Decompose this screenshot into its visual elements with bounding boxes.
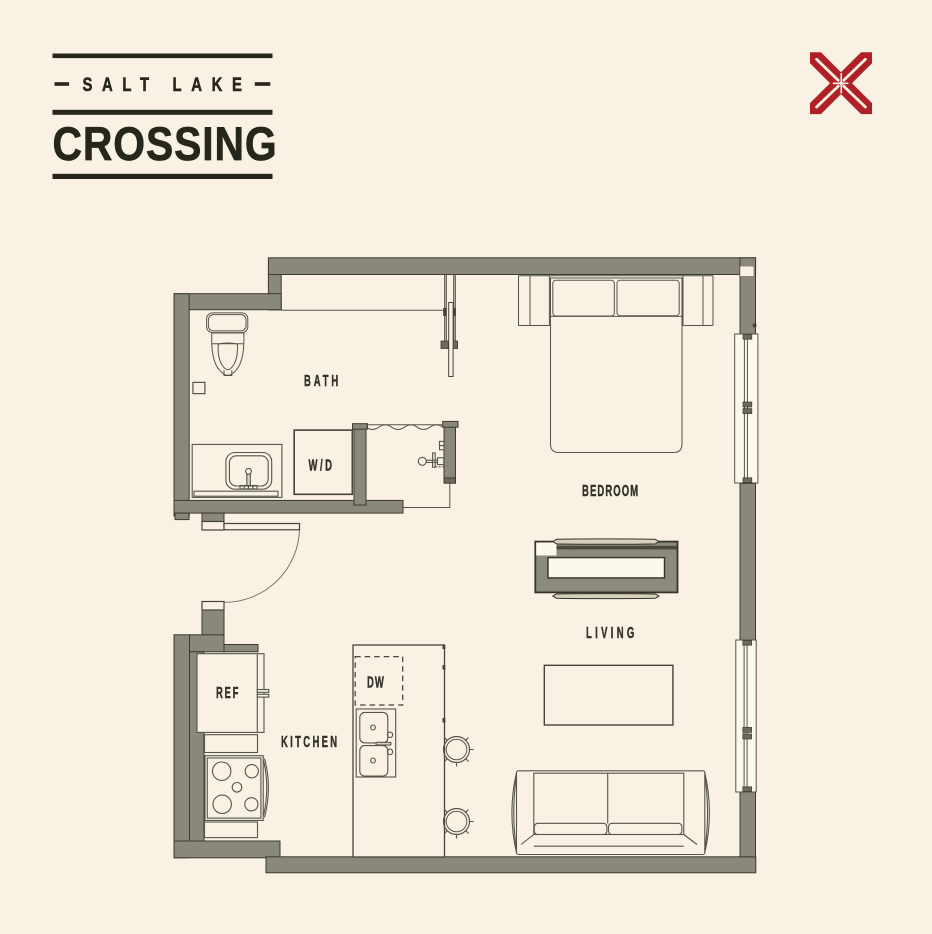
svg-text:KITCHEN: KITCHEN bbox=[281, 733, 339, 751]
svg-text:BATH: BATH bbox=[304, 372, 341, 390]
svg-text:SALT LAKE: SALT LAKE bbox=[83, 74, 252, 95]
svg-text:W/D: W/D bbox=[309, 456, 335, 474]
svg-text:CROSSING: CROSSING bbox=[53, 118, 278, 171]
svg-text:DW: DW bbox=[367, 673, 385, 691]
svg-text:LIVING: LIVING bbox=[586, 624, 638, 642]
svg-text:REF: REF bbox=[216, 684, 240, 702]
svg-text:BEDROOM: BEDROOM bbox=[582, 482, 639, 500]
